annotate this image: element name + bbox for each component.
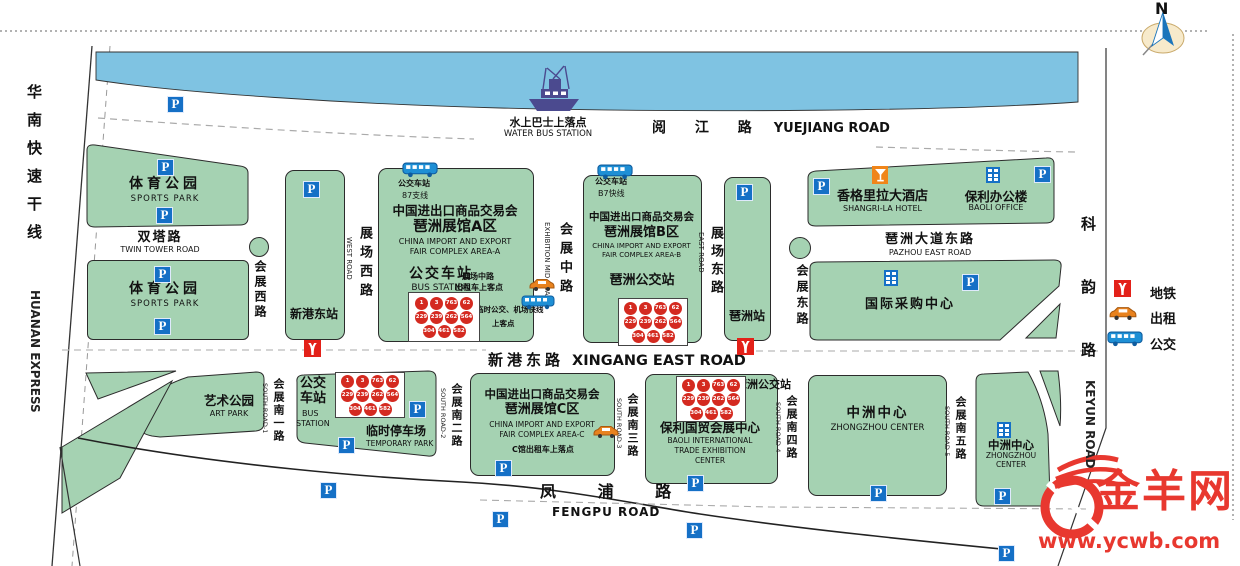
area-b-bus-routes: 1376362229239262564304461582 bbox=[618, 298, 688, 346]
bus-route-badge: 304 bbox=[349, 403, 362, 416]
yuejiang-road-centerline bbox=[98, 118, 474, 139]
bus-station-sw-label-cn2: 车站 bbox=[300, 392, 326, 406]
area-c-title-en2: FAIR COMPLEX AREA-C bbox=[472, 431, 612, 439]
bus-route-badge: 564 bbox=[386, 389, 399, 402]
parking-icon: P bbox=[962, 274, 979, 291]
bus-route-badge: 62 bbox=[460, 297, 473, 310]
legend-taxi-icon bbox=[1108, 305, 1138, 325]
south-road-4-label-cn: 会展南四路 bbox=[783, 395, 799, 460]
pazhou-station-label: 琶洲站 bbox=[726, 310, 768, 323]
south-road-5-label-cn: 会展南五路 bbox=[952, 396, 968, 461]
building-icon bbox=[997, 422, 1011, 438]
bus-route-badge: 3 bbox=[356, 375, 369, 388]
pazhou-ave-label-cn: 琶洲大道东路 bbox=[870, 233, 990, 247]
area-c-title-cn: 中国进出口商品交易会 bbox=[472, 388, 612, 401]
area-b-title-en1: CHINA IMPORT AND EXPORT bbox=[585, 243, 698, 251]
shangrila-hotel-label-en: SHANGRI-LA HOTEL bbox=[830, 205, 935, 214]
zhongzhou-center-label-en: ZHONGZHOU CENTER bbox=[810, 424, 945, 433]
parking-icon: P bbox=[167, 96, 184, 113]
bus-route-badge: 262 bbox=[445, 311, 458, 324]
bus-station-sw-label-en2: STATION bbox=[296, 420, 330, 429]
bus-route-badge: 304 bbox=[632, 330, 645, 343]
bus-route-badge: 1 bbox=[415, 297, 428, 310]
bus-station-sw-routes: 1376362229239262564304461582 bbox=[335, 372, 405, 418]
area-c-title-en1: CHINA IMPORT AND EXPORT bbox=[472, 421, 612, 429]
baoli-office-label-en: BAOLI OFFICE bbox=[955, 204, 1037, 213]
taxi-icon bbox=[592, 424, 620, 443]
parking-icon: P bbox=[813, 178, 830, 195]
parking-icon: P bbox=[998, 545, 1015, 562]
zhongzhou-center-label-cn: 中洲中心 bbox=[810, 406, 945, 421]
legend-taxi-label: 出租 bbox=[1150, 308, 1176, 327]
baoli-expo-label-cn: 保利国贸会展中心 bbox=[645, 421, 775, 435]
bus-route-badge: 62 bbox=[669, 302, 682, 315]
baoli-expo-label-en1: BAOLI INTERNATIONAL bbox=[645, 437, 775, 445]
huizhan-west-road-label: 会展西路 bbox=[252, 260, 269, 320]
bus-icon bbox=[596, 164, 634, 184]
bus-route-badge: 763 bbox=[654, 302, 667, 315]
roundabout-west bbox=[250, 238, 269, 257]
bus-route-badge: 62 bbox=[386, 375, 399, 388]
zhongzhou-center-small-label-cn: 中洲中心 bbox=[975, 439, 1047, 452]
area-a-title-en1: CHINA IMPORT AND EXPORT bbox=[380, 238, 530, 247]
roundabout-east bbox=[790, 238, 811, 259]
bus-route-badge: 62 bbox=[727, 379, 740, 392]
area-b-title-en2: FAIR COMPLEX AREA-B bbox=[585, 252, 698, 260]
xingang-east-road-label-en: XINGANG EAST ROAD bbox=[572, 354, 746, 370]
compass-icon bbox=[1142, 12, 1184, 55]
zhanchang-west-road-label-en: WEST ROAD bbox=[345, 237, 353, 280]
area-a-bus-line-label: 87支线 bbox=[402, 192, 428, 201]
area-b-bus-station-label: 琶洲公交站 bbox=[592, 274, 692, 288]
area-a-bus-routes: 1376362229239262564304461582 bbox=[408, 292, 480, 342]
building-icon bbox=[884, 270, 898, 286]
art-park-label-en: ART PARK bbox=[196, 410, 262, 419]
bus-route-badge: 461 bbox=[364, 403, 377, 416]
legend-metro-label: 地铁 bbox=[1150, 283, 1176, 302]
south-road-1-label-cn: 会展南一路 bbox=[270, 378, 286, 443]
compass-north-label: N bbox=[1155, 0, 1168, 18]
area-b-title-cn: 中国进出口商品交易会 bbox=[585, 212, 698, 224]
bus-route-badge: 239 bbox=[430, 311, 443, 324]
zhongzhou-center-small-label-en2: CENTER bbox=[975, 461, 1047, 469]
bus-route-badge: 763 bbox=[712, 379, 725, 392]
parking-icon: P bbox=[409, 401, 426, 418]
area-a-title-cn: 中国进出口商品交易会 bbox=[380, 204, 530, 218]
bus-route-badge: 582 bbox=[662, 330, 675, 343]
bus-route-badge: 582 bbox=[453, 325, 466, 338]
twin-tower-road-label-en: TWIN TOWER ROAD bbox=[100, 246, 220, 255]
yuejiang-road-label: 阅 江 路 YUEJIANG ROAD bbox=[652, 121, 890, 136]
parking-icon: P bbox=[687, 475, 704, 492]
bus-station-sw-label-cn1: 公交 bbox=[300, 377, 326, 391]
bus-route-badge: 763 bbox=[445, 297, 458, 310]
baoli-expo-bus-routes: 1376362229239262564304461582 bbox=[676, 376, 746, 422]
bus-route-badge: 262 bbox=[712, 393, 725, 406]
zhanchang-east-road-label-en: EAST ROAD bbox=[697, 232, 705, 273]
south-road-3-label-cn: 会展南三路 bbox=[624, 393, 640, 458]
bus-route-badge: 304 bbox=[690, 407, 703, 420]
baoli-expo-label-en3: CENTER bbox=[645, 457, 775, 465]
metro-icon bbox=[737, 338, 754, 355]
bus-route-badge: 304 bbox=[423, 325, 436, 338]
hotel-icon bbox=[872, 166, 888, 184]
legend-bus-label: 公交 bbox=[1150, 334, 1176, 353]
parking-icon: P bbox=[495, 460, 512, 477]
temporary-park-label-en: TEMPORARY PARK bbox=[366, 440, 433, 448]
sourcing-center-label: 国际采购中心 bbox=[855, 298, 965, 312]
bus-route-badge: 461 bbox=[705, 407, 718, 420]
building-icon bbox=[986, 167, 1000, 183]
south-road-1-label-en: SOUTH ROAD-1 bbox=[261, 383, 269, 433]
parking-icon: P bbox=[492, 511, 509, 528]
area-a-taxi-note1: 展场中路 bbox=[462, 273, 494, 282]
huanan-express-label-cn: 华南快速干线 bbox=[24, 84, 45, 252]
legend-bus-icon bbox=[1106, 331, 1144, 351]
south-road-2-label-en: SOUTH ROAD-2 bbox=[439, 388, 447, 438]
bus-route-badge: 229 bbox=[341, 389, 354, 402]
area-a-subtitle-cn: 琶洲展馆A区 bbox=[380, 220, 530, 236]
parking-icon: P bbox=[736, 184, 753, 201]
keyun-road-label-cn: 科韵路 bbox=[1078, 216, 1099, 405]
bus-route-badge: 582 bbox=[720, 407, 733, 420]
keyun-road-label-en: KEYUN ROAD bbox=[1083, 380, 1097, 469]
sports-park-south-label-cn: 体育公园 bbox=[100, 282, 230, 297]
zhanchang-west-road-label-cn: 展场西路 bbox=[355, 226, 374, 302]
parking-icon: P bbox=[303, 181, 320, 198]
parking-icon: P bbox=[994, 488, 1011, 505]
bus-route-badge: 461 bbox=[647, 330, 660, 343]
parking-icon: P bbox=[320, 482, 337, 499]
yuejiang-road-centerline-east bbox=[876, 147, 1076, 152]
xingang-east-station-label: 新港东站 bbox=[287, 308, 341, 321]
xingang-east-road-label-cn: 新港东路 bbox=[488, 352, 564, 369]
twin-tower-road-label-cn: 双塔路 bbox=[100, 231, 220, 245]
parking-icon: P bbox=[686, 522, 703, 539]
parking-icon: P bbox=[870, 485, 887, 502]
baoli-expo-label-en2: TRADE EXHIBITION bbox=[645, 447, 775, 455]
parking-icon: P bbox=[157, 159, 174, 176]
parking-icon: P bbox=[338, 437, 355, 454]
bus-route-badge: 262 bbox=[371, 389, 384, 402]
ycwb-logo-text: 金羊网 bbox=[1096, 468, 1234, 516]
area-a-title-en2: FAIR COMPLEX AREA-A bbox=[380, 248, 530, 257]
west-wedge-shape bbox=[62, 381, 172, 513]
temporary-park-label-cn: 临时停车场 bbox=[366, 425, 426, 438]
xingang-east-road-label: 新港东路 XINGANG EAST ROAD bbox=[488, 352, 746, 370]
zhongzhou-center-small-label-en1: ZHONGZHOU bbox=[975, 452, 1047, 460]
bus-route-badge: 1 bbox=[341, 375, 354, 388]
bus-route-badge: 3 bbox=[430, 297, 443, 310]
area-a-temp-note2: 上客点 bbox=[492, 320, 515, 328]
ycwb-logo-url: www.ycwb.com bbox=[1038, 530, 1220, 553]
parking-icon: P bbox=[1034, 166, 1051, 183]
bus-route-badge: 262 bbox=[654, 316, 667, 329]
bus-route-badge: 564 bbox=[669, 316, 682, 329]
parking-icon: P bbox=[154, 318, 171, 335]
taxi-icon bbox=[528, 277, 556, 296]
pazhou-fair-transport-map: 水上巴士上落点 WATER BUS STATION 阅 江 路 YUEJIANG… bbox=[0, 0, 1240, 566]
bus-route-badge: 229 bbox=[415, 311, 428, 324]
bus-route-badge: 1 bbox=[624, 302, 637, 315]
sports-park-north-label-cn: 体育公园 bbox=[100, 177, 230, 192]
fengpu-road-label-cn: 凤 浦 路 bbox=[540, 483, 689, 501]
baoli-office-label-cn: 保利办公楼 bbox=[955, 190, 1037, 204]
bus-route-badge: 229 bbox=[624, 316, 637, 329]
zhongzhou-center-block bbox=[808, 375, 947, 496]
metro-icon bbox=[304, 340, 321, 357]
bus-route-badge: 461 bbox=[438, 325, 451, 338]
art-park-label-cn: 艺术公园 bbox=[196, 394, 262, 408]
huizhan-east-road-label: 会展东路 bbox=[794, 264, 811, 328]
bus-route-badge: 763 bbox=[371, 375, 384, 388]
bus-route-badge: 564 bbox=[460, 311, 473, 324]
bus-route-badge: 564 bbox=[727, 393, 740, 406]
bus-route-badge: 239 bbox=[697, 393, 710, 406]
bus-icon bbox=[401, 162, 439, 182]
pazhou-ave-label-en: PAZHOU EAST ROAD bbox=[870, 249, 990, 258]
sports-park-south-label-en: SPORTS PARK bbox=[100, 300, 230, 309]
area-c-subtitle-cn: 琶洲展馆C区 bbox=[472, 403, 612, 417]
bus-route-badge: 239 bbox=[639, 316, 652, 329]
shangrila-hotel-label-cn: 香格里拉大酒店 bbox=[830, 190, 935, 204]
yuejiang-road-label-cn: 阅 江 路 bbox=[652, 121, 764, 136]
bus-route-badge: 239 bbox=[356, 389, 369, 402]
huanan-express-label-en: HUANAN EXPRESS bbox=[28, 290, 42, 413]
water-bus-station-label-en: WATER BUS STATION bbox=[492, 130, 604, 139]
pearl-river bbox=[96, 52, 1078, 111]
legend-metro-icon bbox=[1114, 280, 1131, 297]
huizhan-mid-road-label-cn: 会展中路 bbox=[555, 222, 574, 298]
yuejiang-road-label-en: YUEJIANG ROAD bbox=[774, 122, 890, 136]
bus-route-badge: 229 bbox=[682, 393, 695, 406]
water-bus-station-label-cn: 水上巴士上落点 bbox=[492, 117, 604, 129]
parking-icon: P bbox=[154, 266, 171, 283]
bus-route-badge: 582 bbox=[379, 403, 392, 416]
area-c-taxi-note: C馆出租车上落点 bbox=[512, 446, 574, 455]
south-road-4-label-en: SOUTH ROAD-4 bbox=[774, 402, 782, 452]
zhanchang-east-road-label-cn: 展场东路 bbox=[706, 226, 725, 298]
bus-route-badge: 1 bbox=[682, 379, 695, 392]
bus-route-badge: 3 bbox=[639, 302, 652, 315]
sports-park-north-label-en: SPORTS PARK bbox=[100, 195, 230, 204]
bus-icon bbox=[520, 295, 556, 314]
south-road-2-label-cn: 会展南二路 bbox=[448, 383, 464, 448]
bus-station-sw-label-en1: BUS bbox=[302, 410, 318, 419]
parking-icon: P bbox=[156, 207, 173, 224]
bus-route-badge: 3 bbox=[697, 379, 710, 392]
area-b-bus-line-label: B7快线 bbox=[598, 190, 625, 199]
south-road-5-label-en: SOUTH ROAD-5 bbox=[943, 406, 951, 456]
area-b-subtitle-cn: 琶洲展馆B区 bbox=[585, 226, 698, 240]
fengpu-road-label-en: FENGPU ROAD bbox=[552, 506, 660, 519]
